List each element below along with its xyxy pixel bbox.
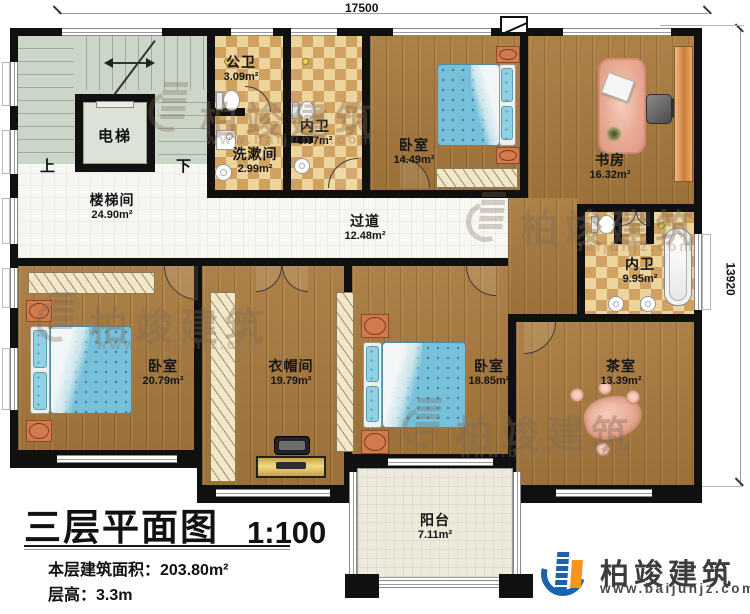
nightstand — [361, 430, 389, 454]
bath2-stub-wall — [614, 212, 622, 244]
dim-leader — [700, 486, 742, 487]
window — [694, 234, 702, 310]
balcony-left-rail — [349, 472, 357, 574]
logo-building-orange — [570, 560, 583, 588]
room-label-inner-bath2: 内卫9.95m² — [623, 256, 658, 285]
nightstand — [496, 46, 520, 63]
window — [556, 489, 652, 497]
window-sill — [2, 348, 10, 410]
sink — [294, 158, 310, 174]
wardrobe — [210, 292, 236, 482]
nightstand — [496, 147, 520, 164]
stair-arrow-bar — [113, 62, 146, 64]
window-sill — [2, 198, 10, 244]
stair-down-label: 下 — [176, 155, 191, 176]
window — [57, 455, 177, 463]
shower-head-icon — [658, 222, 665, 229]
toilet — [223, 90, 240, 111]
watermark-logo-icon — [466, 192, 516, 248]
elevator-label: 电梯 — [75, 125, 155, 146]
brand-logo-icon — [541, 548, 593, 598]
room-label-bedroom2: 卧室20.79m² — [143, 358, 184, 387]
floor-height-text: 层高：3.3m — [48, 581, 132, 605]
window — [10, 348, 18, 410]
room-label-stairwell: 楼梯间24.90m² — [90, 192, 135, 221]
room-label-inner-bath1: 内卫6.07m² — [298, 118, 333, 147]
bed — [437, 64, 500, 146]
room-label-cloakroom: 衣帽间19.79m² — [269, 358, 314, 387]
top-dimension-line — [58, 13, 708, 14]
corridor-wood-floor — [508, 198, 577, 314]
window — [393, 28, 491, 36]
balcony-door-window — [388, 458, 493, 466]
dim-leader — [660, 25, 744, 26]
pillow — [33, 372, 47, 410]
stool — [626, 390, 640, 404]
stool — [596, 442, 610, 456]
sink — [215, 164, 232, 181]
window — [10, 268, 18, 308]
balcony-post-right — [499, 574, 533, 598]
floor-area-text: 本层建筑面积：203.80m² — [48, 556, 229, 580]
toilet — [216, 92, 223, 110]
balcony-right-rail — [513, 472, 521, 574]
floorplan-page: 17500 13920 — [0, 0, 750, 614]
window-sill — [702, 234, 711, 310]
nightstand — [361, 314, 389, 338]
balcony-post-left — [345, 574, 379, 598]
room-label-washroom: 洗漱间2.99m² — [233, 146, 278, 175]
window-sill — [2, 268, 10, 308]
room-label-bedroom1: 卧室14.49m² — [394, 137, 435, 166]
sink — [608, 296, 624, 312]
room-label-bedroom3: 卧室18.85m² — [469, 358, 510, 387]
window — [10, 62, 18, 106]
top-dimension-value: 17500 — [345, 1, 378, 15]
window — [563, 28, 671, 36]
light-fixture-icon — [302, 58, 309, 65]
window-sill — [2, 130, 10, 174]
plant — [606, 126, 622, 142]
stairs-left-flight — [18, 36, 74, 162]
wardrobe — [436, 168, 518, 188]
bathtub — [664, 228, 692, 306]
bookshelf — [674, 46, 693, 182]
window — [291, 28, 337, 36]
window — [62, 28, 162, 36]
watermark-logo-icon — [148, 82, 198, 138]
elevator-panel — [96, 101, 134, 108]
toilet — [598, 215, 615, 234]
pillow — [501, 68, 513, 102]
watermark-logo-icon — [402, 398, 452, 454]
watermark-logo-icon — [36, 292, 86, 348]
title-underline — [24, 545, 290, 550]
sink — [640, 296, 656, 312]
balcony-bottom-rail — [379, 580, 499, 588]
stair-arrow-left-icon — [104, 58, 113, 68]
stool — [570, 388, 584, 402]
right-dimension-value: 13920 — [724, 262, 738, 295]
office-chair — [646, 94, 672, 124]
window-sill — [2, 62, 10, 106]
toilet — [591, 216, 598, 233]
window — [10, 130, 18, 174]
drawing-title-text: 三层平面图 — [24, 497, 219, 551]
drawing-title: 三层平面图 1:100 — [24, 497, 326, 551]
pillow — [366, 386, 379, 422]
room-label-study: 书房16.32m² — [590, 152, 631, 181]
dressing-table — [256, 456, 326, 478]
stair-arrow-right-icon — [146, 58, 155, 68]
pillow — [366, 346, 379, 382]
pillow — [501, 106, 513, 140]
room-label-public-bath: 公卫3.09m² — [224, 54, 259, 83]
stair-up-label: 上 — [40, 155, 55, 176]
toilet — [292, 102, 299, 119]
wardrobe — [28, 272, 155, 294]
elevator-shaft: 电梯 — [75, 94, 155, 172]
chair — [274, 436, 310, 455]
room-label-balcony: 阳台7.11m² — [418, 512, 452, 541]
nightstand — [26, 420, 52, 442]
window — [10, 198, 18, 244]
flue-box — [500, 16, 528, 34]
right-dimension-line — [740, 30, 741, 486]
room-label-tearoom: 茶室13.39m² — [601, 358, 642, 387]
window — [231, 28, 273, 36]
brand-website: www.baijunjz.com — [600, 581, 750, 596]
wardrobe — [336, 292, 354, 452]
window — [216, 489, 330, 497]
room-label-corridor: 过道12.48m² — [345, 213, 386, 242]
